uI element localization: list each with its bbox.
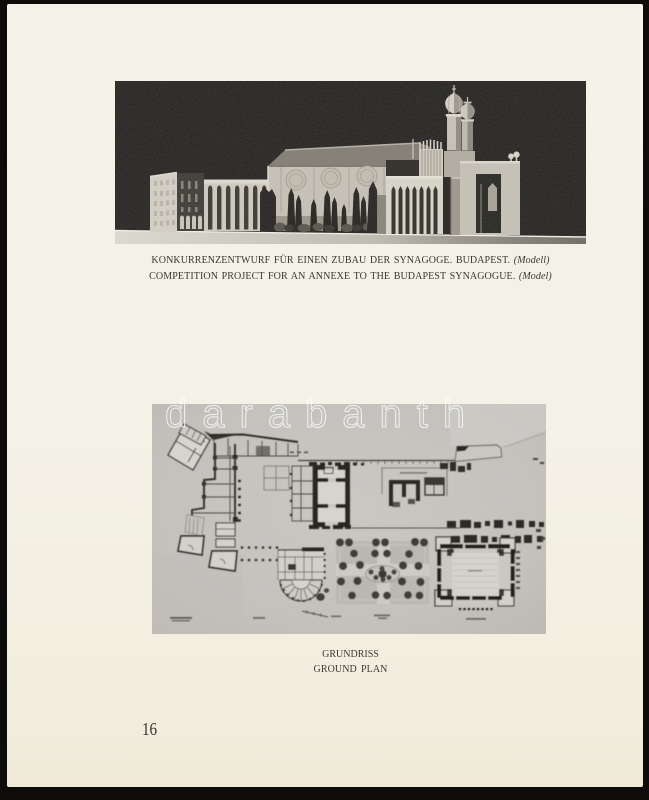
svg-text:darabanth: darabanth <box>165 392 480 436</box>
